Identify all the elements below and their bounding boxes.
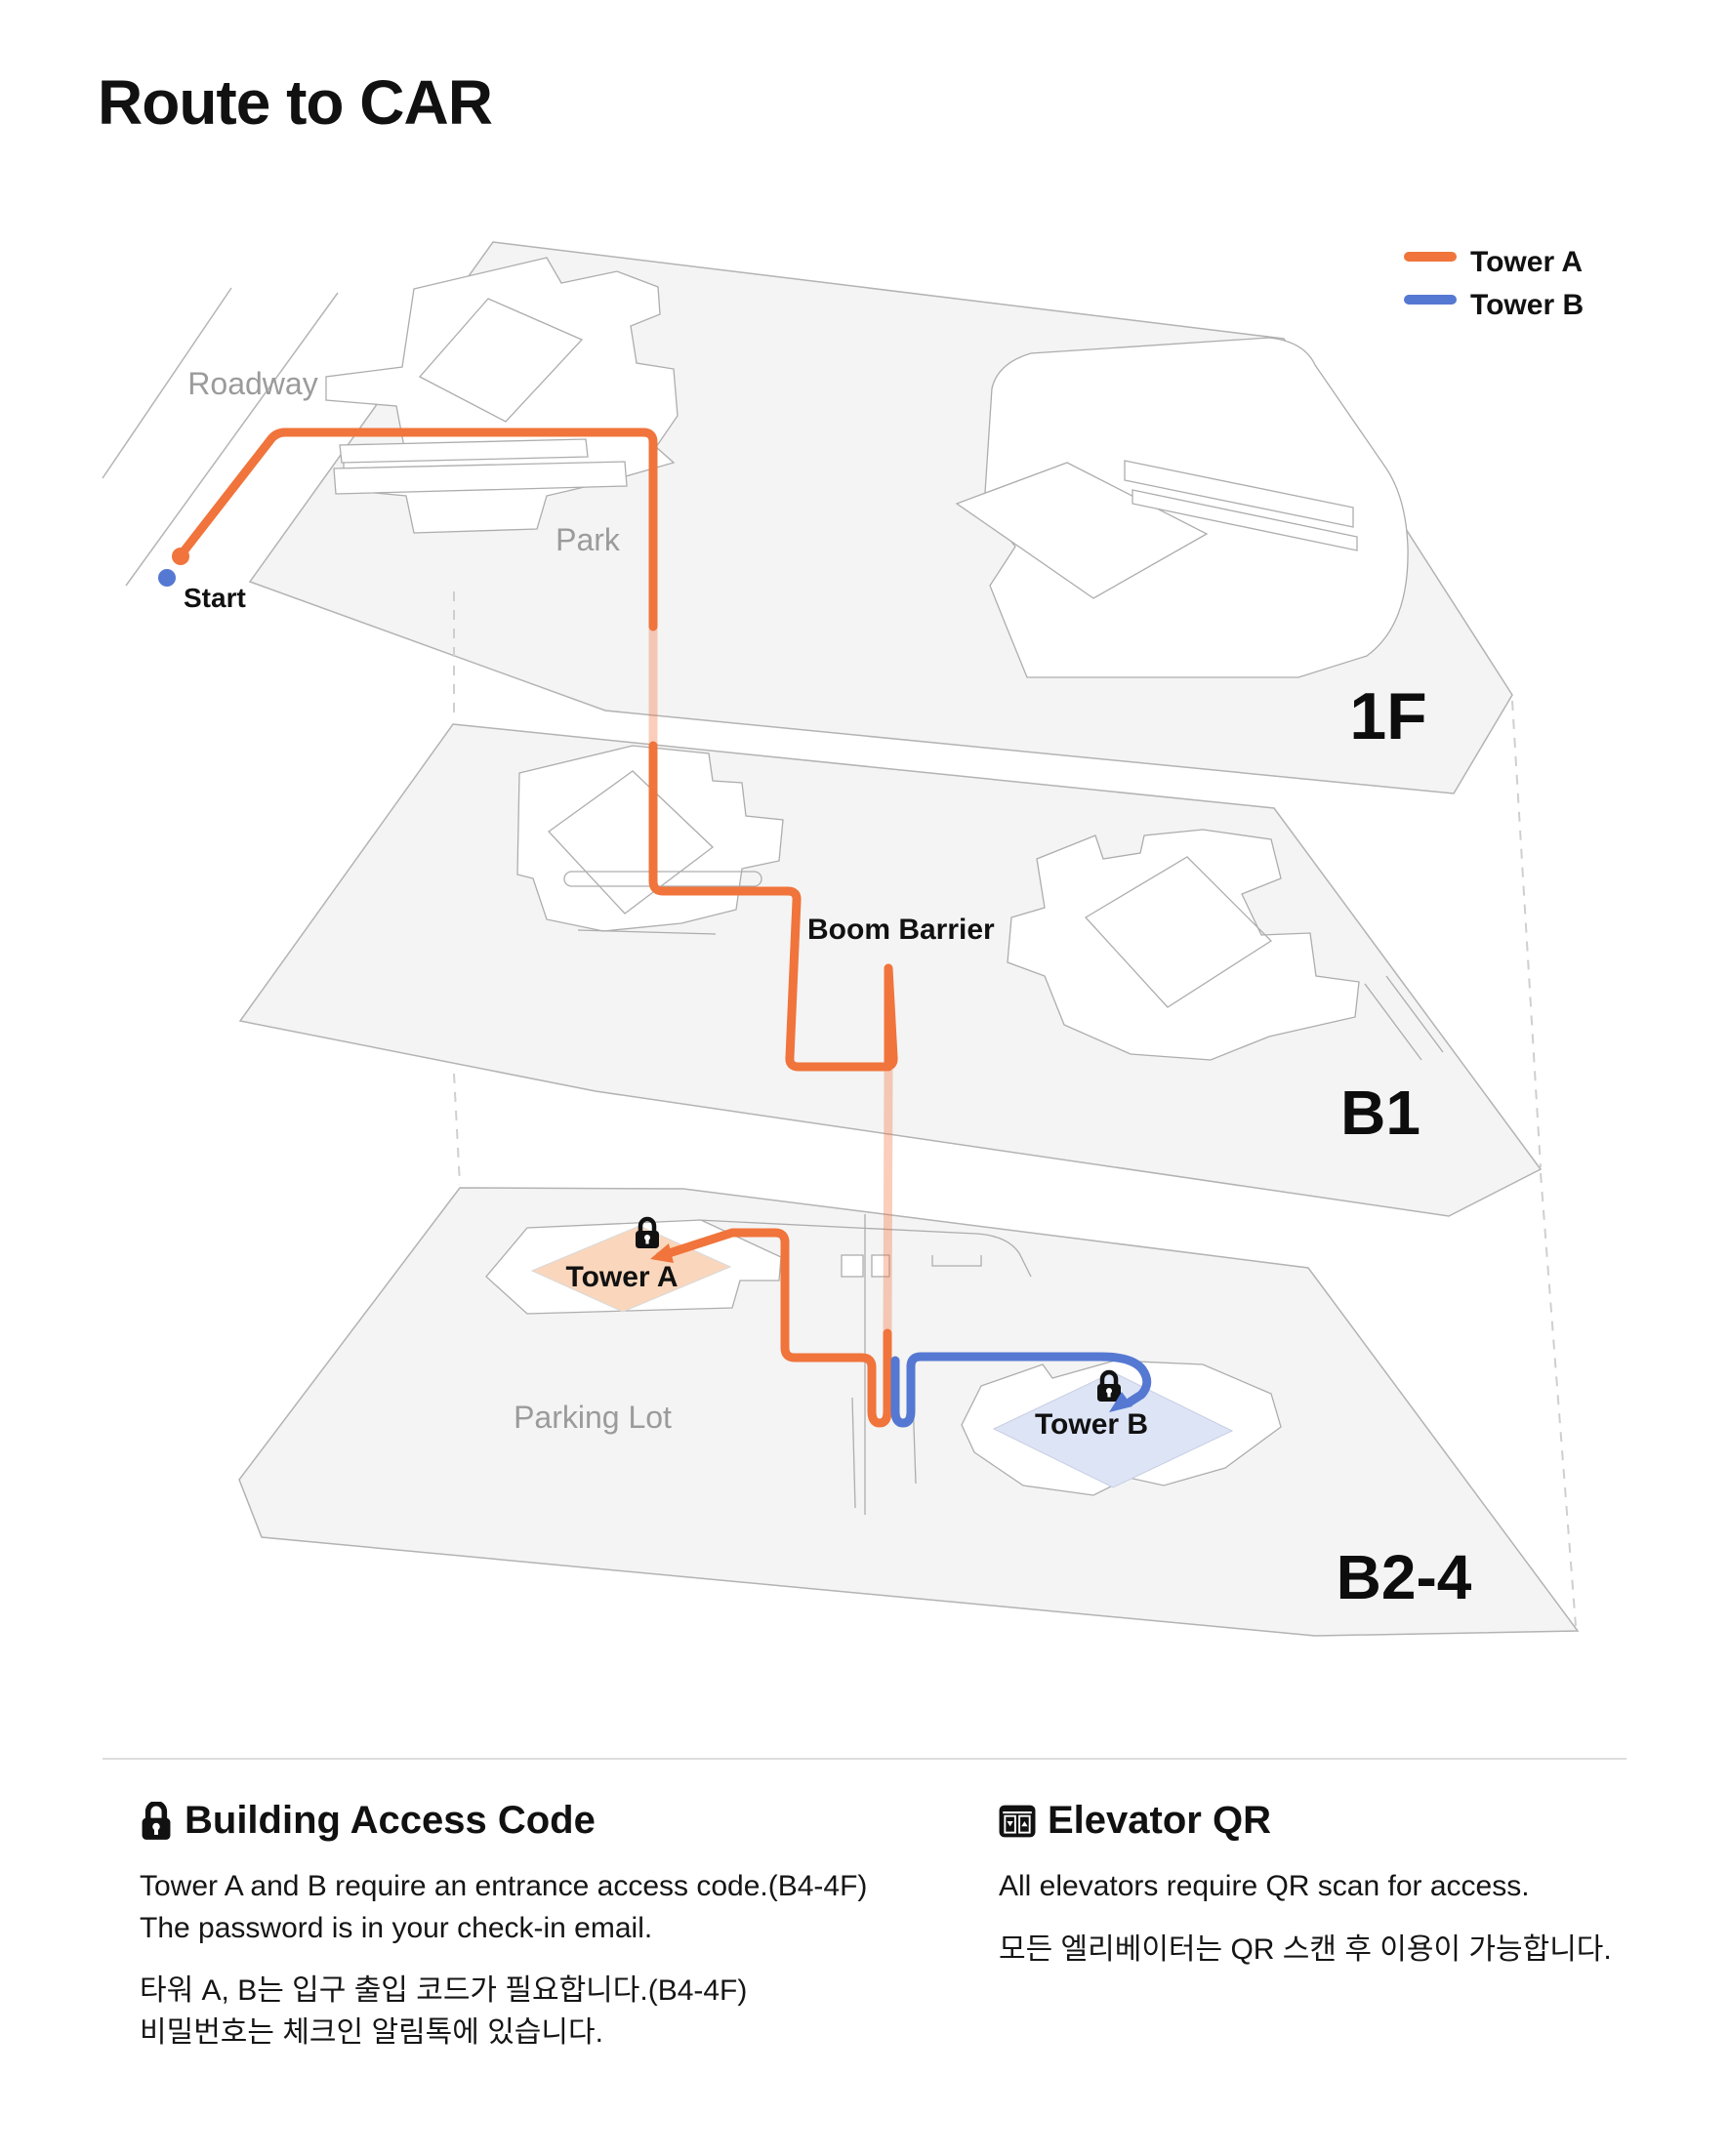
start-dot-tower-a — [172, 548, 189, 565]
elevator-line-en: All elevators require QR scan for access… — [999, 1866, 1663, 1908]
building-access-title: Building Access Code — [185, 1799, 596, 1843]
tower-b-label: Tower B — [1035, 1408, 1148, 1441]
building-access-section: Building Access Code Tower A and B requi… — [140, 1799, 921, 2054]
elevator-qr-title: Elevator QR — [1048, 1799, 1271, 1843]
elevator-qr-heading: Elevator QR — [999, 1799, 1663, 1843]
start-point: Start — [158, 548, 246, 613]
floor-label-b24: B2-4 — [1337, 1542, 1472, 1612]
access-line-en-2: The password is in your check-in email. — [140, 1908, 921, 1950]
area-label-parking-lot: Parking Lot — [514, 1400, 672, 1435]
access-line-ko-1: 타워 A, B는 입구 출입 코드가 필요합니다.(B4-4F) — [140, 1971, 921, 2013]
tower-a-label: Tower A — [565, 1261, 678, 1293]
start-label: Start — [184, 583, 246, 613]
area-label-park: Park — [556, 522, 621, 557]
footer-divider — [103, 1758, 1626, 1760]
legend-swatch-tower-b — [1404, 295, 1457, 305]
route-map-canvas: 1F Park Roadway — [0, 0, 1729, 1767]
start-dot-tower-b — [158, 569, 176, 587]
area-label-roadway: Roadway — [187, 366, 317, 401]
building-footprints-1f-right — [957, 338, 1408, 677]
lock-icon — [140, 1802, 173, 1841]
access-line-en-1: Tower A and B require an entrance access… — [140, 1866, 921, 1908]
floor-1f: 1F Park — [250, 242, 1512, 793]
elevator-icon — [999, 1805, 1036, 1838]
page: Route to CAR — [0, 0, 1729, 2156]
building-access-heading: Building Access Code — [140, 1799, 921, 1843]
building-access-text-ko: 타워 A, B는 입구 출입 코드가 필요합니다.(B4-4F) 비밀번호는 체… — [140, 1971, 921, 2054]
legend-label-tower-a: Tower A — [1470, 246, 1583, 278]
elevator-qr-section: Elevator QR All elevators require QR sca… — [999, 1799, 1663, 1971]
legend-label-tower-b: Tower B — [1470, 289, 1584, 321]
building-access-text-en: Tower A and B require an entrance access… — [140, 1866, 921, 1949]
boom-barrier-label: Boom Barrier — [807, 914, 995, 946]
elevator-qr-text-en: All elevators require QR scan for access… — [999, 1866, 1663, 1908]
access-line-ko-2: 비밀번호는 체크인 알림톡에 있습니다. — [140, 2013, 921, 2054]
elevator-qr-text-ko: 모든 엘리베이터는 QR 스캔 후 이용이 가능합니다. — [999, 1930, 1663, 1972]
elevator-line-ko: 모든 엘리베이터는 QR 스캔 후 이용이 가능합니다. — [999, 1930, 1663, 1972]
legend-swatch-tower-a — [1404, 252, 1457, 262]
floor-label-1f: 1F — [1349, 679, 1426, 753]
floor-label-b1: B1 — [1340, 1078, 1420, 1148]
legend: Tower A Tower B — [1404, 246, 1584, 321]
